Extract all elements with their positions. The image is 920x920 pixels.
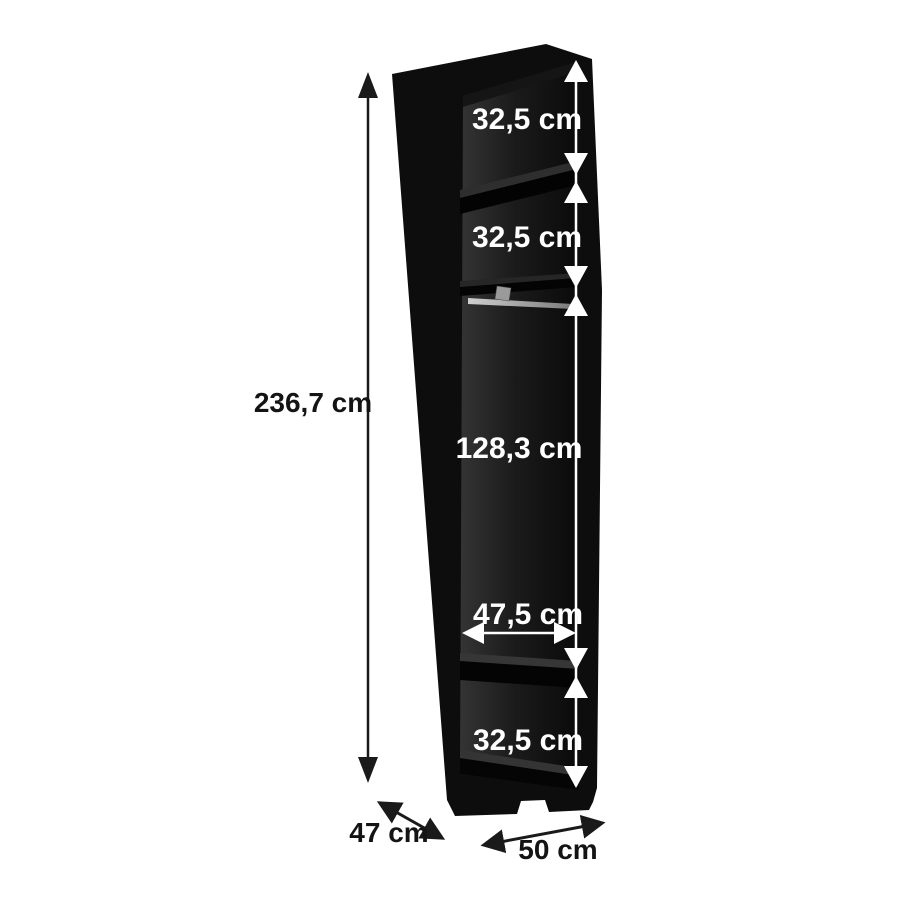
label-interior-width: 47,5 cm: [473, 598, 583, 631]
product-dimension-diagram: 32,5 cm 32,5 cm 128,3 cm 47,5 cm 32,5 cm…: [0, 0, 920, 920]
wardrobe-dimension-drawing: 32,5 cm 32,5 cm 128,3 cm 47,5 cm 32,5 cm…: [0, 0, 920, 920]
arrow-up-icon: [358, 72, 378, 98]
arrow-down-icon: [358, 757, 378, 783]
label-depth: 47 cm: [349, 817, 428, 848]
total-height-dimension: [358, 72, 378, 783]
rail-bracket: [495, 286, 511, 301]
label-second-section: 32,5 cm: [472, 221, 582, 254]
label-bottom-section: 32,5 cm: [473, 724, 583, 757]
label-hanging-section: 128,3 cm: [456, 432, 583, 465]
label-width: 50 cm: [518, 834, 597, 865]
label-total-height: 236,7 cm: [254, 387, 372, 418]
label-top-section: 32,5 cm: [472, 103, 582, 136]
